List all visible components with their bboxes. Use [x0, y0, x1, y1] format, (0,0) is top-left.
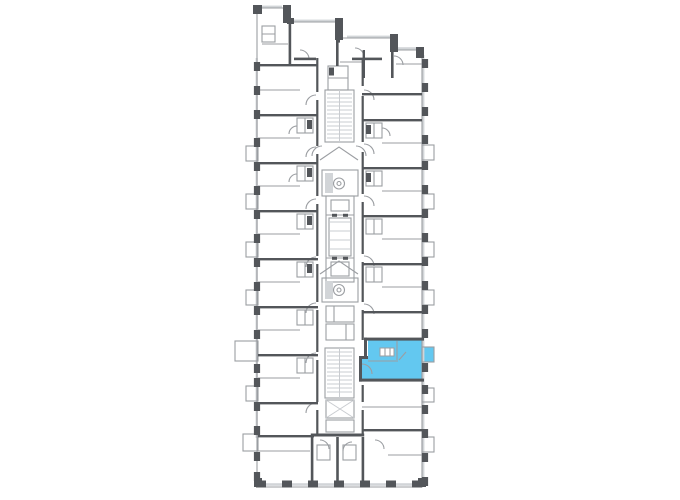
elevator-lobby-upper [320, 147, 358, 196]
left-unit-walls [258, 64, 318, 437]
stairwell-lower [325, 348, 354, 398]
elevator-bank [326, 196, 354, 282]
chute-symbol-upper [334, 178, 345, 189]
chute-symbol-lower [334, 285, 345, 296]
structural-walls [253, 5, 428, 488]
floor-plan-svg [0, 0, 680, 500]
floor-plan-page [0, 0, 680, 500]
core [320, 66, 358, 432]
stairwell-upper [325, 90, 354, 142]
building-outline [257, 8, 422, 487]
